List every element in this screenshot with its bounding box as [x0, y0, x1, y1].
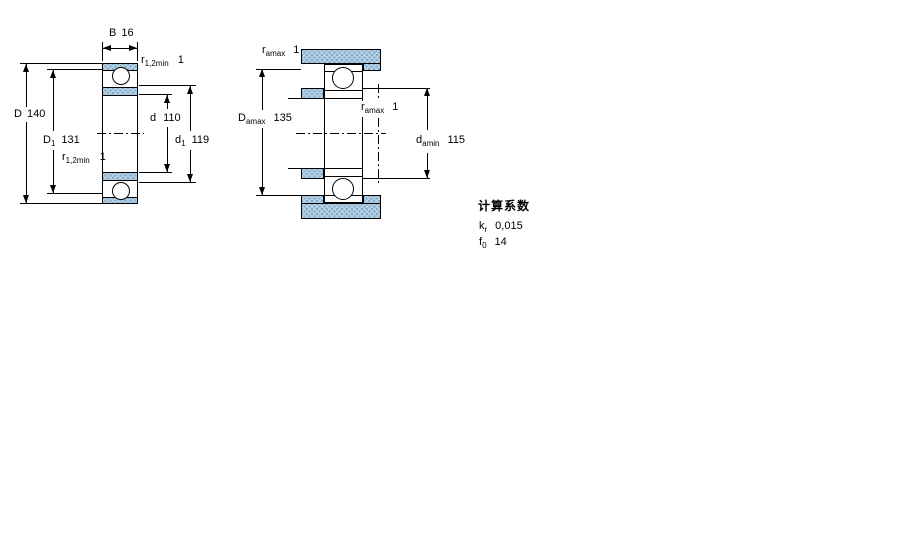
inner-ring-bottom-section-right	[324, 168, 363, 177]
dim-label-damin: damin115	[416, 134, 465, 150]
ball-bottom-right-figure	[332, 178, 354, 200]
arrow-D1-bottom	[50, 185, 56, 193]
symbol-D1: D	[43, 134, 51, 146]
symbol-D: D	[14, 108, 22, 120]
arrow-d-top	[164, 95, 170, 103]
value-ramax-top: 1	[293, 44, 299, 56]
ext-line-D-bottom	[20, 203, 102, 204]
housing-section-bottom	[301, 203, 381, 219]
dim-line-D1-upper	[53, 70, 54, 131]
subscript-f0: 0	[482, 241, 486, 250]
dim-label-Damax: Damax135	[238, 112, 292, 128]
dim-label-B: B16	[109, 27, 134, 39]
arrow-B-left	[103, 45, 111, 51]
factor-kr: kr0,015	[479, 220, 523, 236]
ext-line-D1-bottom	[47, 193, 102, 194]
subscript-d1: 1	[181, 139, 185, 148]
value-f0: 14	[495, 236, 507, 248]
inner-ring-bottom-section	[102, 172, 138, 181]
shaft-seat-line-top	[288, 98, 301, 99]
subscript-D1: 1	[51, 139, 55, 148]
subscript-ramax-mid: amax	[365, 106, 385, 115]
shaft-shoulder-bottom	[301, 168, 324, 179]
bearing-dimension-drawing: B16 r1,2min1 D140 D1131 r1,2min1 d110 d1…	[0, 0, 900, 560]
dim-label-D1: D1131	[43, 134, 80, 150]
housing-shoulder-bottom-left	[301, 195, 324, 204]
shaft-seat-line-bottom	[288, 168, 301, 169]
subscript-r12-top: 1,2min	[145, 59, 169, 68]
arrow-damin-bottom	[424, 170, 430, 178]
arrow-B-right	[129, 45, 137, 51]
housing-shoulder-top-right	[363, 63, 381, 71]
ext-line-B-right	[137, 42, 138, 61]
ext-line-d-bottom	[139, 172, 172, 173]
housing-section-top	[301, 49, 381, 64]
dim-line-Damax-lower	[262, 128, 263, 195]
calculation-factors-title: 计算系数	[478, 197, 530, 214]
subscript-Damax: amax	[246, 117, 266, 126]
inner-ring-top-section	[102, 87, 138, 96]
ball-top-right-figure	[332, 67, 354, 89]
arrow-d-bottom	[164, 164, 170, 172]
subscript-kr: r	[485, 225, 488, 234]
arrow-d1-top	[187, 86, 193, 94]
arrow-damin-top	[424, 88, 430, 96]
dim-label-r12-top: r1,2min1	[141, 54, 184, 70]
arrow-D-top	[23, 64, 29, 72]
arrow-Damax-bottom	[259, 187, 265, 195]
subscript-damin: amin	[422, 139, 439, 148]
shaft-shoulder-top	[301, 88, 324, 99]
axis-centerline-right-figure	[296, 133, 386, 134]
arrow-d1-bottom	[187, 174, 193, 182]
arrow-Damax-top	[259, 69, 265, 77]
value-r12-top: 1	[178, 54, 184, 66]
housing-shoulder-bottom-right	[363, 195, 381, 204]
dim-label-r12-mid: r1,2min1	[62, 151, 106, 167]
ball-top-left-figure	[112, 67, 130, 85]
dim-label-d1: d1119	[175, 134, 209, 150]
value-B: 16	[121, 27, 133, 39]
value-ramax-mid: 1	[392, 101, 398, 113]
ext-line-damin-top	[363, 88, 430, 89]
ext-line-d1-bottom	[139, 182, 196, 183]
subscript-r12-mid: 1,2min	[66, 156, 90, 165]
axis-centerline-left-figure	[97, 133, 144, 134]
factor-f0: f014	[479, 236, 507, 252]
value-d: 110	[163, 112, 181, 124]
inner-ring-top-section-right	[324, 90, 363, 99]
value-damin: 115	[447, 134, 465, 146]
dim-label-D: D140	[14, 108, 45, 120]
value-r12-mid: 1	[100, 151, 106, 163]
ext-line-D-top	[20, 63, 102, 64]
value-d1: 119	[192, 134, 210, 146]
value-kr: 0,015	[495, 220, 523, 232]
arrow-D-bottom	[23, 195, 29, 203]
value-D1: 131	[61, 134, 79, 146]
symbol-d: d	[150, 112, 156, 124]
abutment-centerline-vertical	[378, 84, 379, 184]
dim-label-ramax-top: ramax1	[262, 44, 299, 60]
symbol-Damax: D	[238, 112, 246, 124]
ext-line-damin-bottom	[363, 178, 430, 179]
value-Damax: 135	[274, 112, 292, 124]
ball-bottom-left-figure	[112, 182, 130, 200]
ext-line-Damax-bottom	[256, 195, 301, 196]
arrow-D1-top	[50, 70, 56, 78]
value-D: 140	[27, 108, 45, 120]
dim-line-D-lower	[26, 122, 27, 203]
subscript-ramax-top: amax	[266, 49, 286, 58]
dim-label-d: d110	[150, 112, 181, 124]
symbol-B: B	[109, 27, 116, 39]
dim-label-ramax-mid: ramax1	[360, 101, 399, 117]
